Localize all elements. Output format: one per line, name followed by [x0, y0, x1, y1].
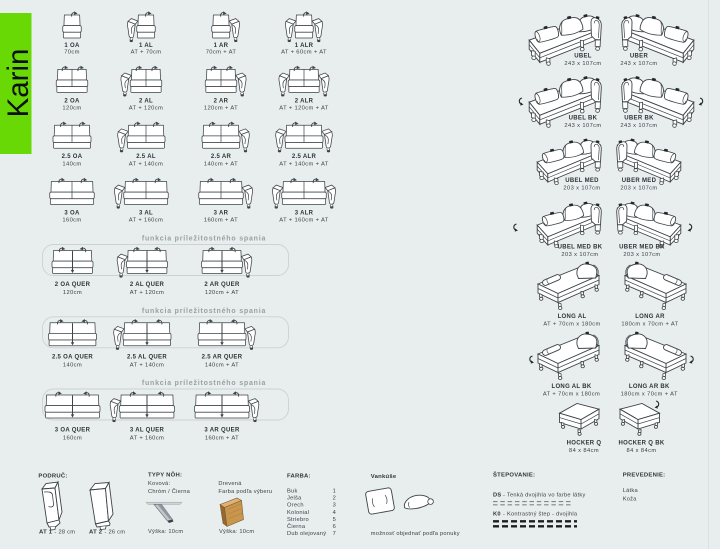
svg-text:Farba podľa výberu: Farba podľa výberu	[218, 489, 272, 495]
svg-text:AT + 70cm: AT + 70cm	[131, 50, 162, 56]
svg-text:AT + 160cm: AT + 160cm	[129, 218, 163, 224]
svg-text:7: 7	[333, 531, 336, 537]
svg-text:Striebro: Striebro	[287, 517, 309, 523]
svg-text:Výška: 10cm: Výška: 10cm	[148, 529, 183, 535]
svg-text:2.5 OA QUER: 2.5 OA QUER	[52, 355, 93, 361]
svg-text:2.5 OA: 2.5 OA	[62, 154, 83, 160]
svg-text:2 ALR: 2 ALR	[295, 98, 314, 104]
svg-text:203 x 107cm: 203 x 107cm	[563, 185, 600, 191]
svg-text:AT 1: AT 1	[39, 530, 53, 536]
svg-text:2.5 AL: 2.5 AL	[136, 154, 156, 160]
svg-text:UBER BK: UBER BK	[624, 115, 654, 121]
svg-text:AT + 160cm + AT: AT + 160cm + AT	[279, 218, 329, 224]
svg-text:Buk: Buk	[287, 488, 298, 494]
svg-text:Koža: Koža	[623, 496, 638, 502]
svg-text:TYPY NÔH:: TYPY NÔH:	[148, 471, 182, 479]
svg-text:2.5 AR: 2.5 AR	[211, 154, 232, 160]
svg-text:AT + 60cm + AT: AT + 60cm + AT	[281, 50, 327, 56]
svg-text:2 AR: 2 AR	[214, 98, 229, 104]
svg-text:120cm: 120cm	[63, 290, 82, 296]
svg-text:Látka: Látka	[623, 488, 639, 494]
svg-text:Drevená: Drevená	[218, 481, 242, 487]
svg-text:120cm + AT: 120cm + AT	[204, 105, 238, 111]
svg-text:3 AR: 3 AR	[214, 211, 229, 217]
svg-text:203 x 107cm: 203 x 107cm	[620, 185, 657, 191]
svg-text:AT + 140cm + AT: AT + 140cm + AT	[279, 161, 329, 167]
svg-text:140cm + AT: 140cm + AT	[204, 161, 238, 167]
svg-text:140cm: 140cm	[63, 363, 82, 369]
svg-text:5: 5	[333, 517, 336, 523]
svg-text:1 AR: 1 AR	[214, 43, 229, 49]
svg-text:UBEL MED BK: UBEL MED BK	[558, 244, 603, 250]
svg-text:funkcia príležitostného spania: funkcia príležitostného spania	[142, 380, 266, 387]
svg-text:180cm x 70cm + AT: 180cm x 70cm + AT	[621, 322, 678, 328]
svg-text:funkcia príležitostného spania: funkcia príležitostného spania	[142, 236, 266, 243]
svg-text:AT + 160cm: AT + 160cm	[130, 435, 164, 441]
svg-text:6: 6	[333, 524, 336, 530]
svg-text:DS: DS	[493, 493, 501, 499]
svg-text:160cm + AT: 160cm + AT	[205, 435, 239, 441]
svg-text:3: 3	[333, 503, 336, 509]
svg-text:AT + 120cm + AT: AT + 120cm + AT	[279, 105, 329, 111]
svg-text:- 28 cm: - 28 cm	[55, 530, 76, 536]
svg-text:84 x 84cm: 84 x 84cm	[626, 448, 656, 454]
svg-text:Výška: 10cm: Výška: 10cm	[219, 529, 254, 535]
svg-text:LONG AR: LONG AR	[635, 314, 665, 320]
svg-text:1 OA: 1 OA	[64, 43, 80, 49]
svg-text:160cm: 160cm	[62, 218, 81, 224]
svg-text:2 AL: 2 AL	[139, 98, 153, 104]
svg-text:2: 2	[333, 495, 336, 501]
svg-text:AT 2: AT 2	[89, 530, 103, 536]
svg-text:FARBA:: FARBA:	[287, 474, 311, 480]
svg-text:K0: K0	[493, 512, 501, 518]
svg-text:funkcia príležitostného spania: funkcia príležitostného spania	[142, 308, 266, 315]
svg-text:70cm: 70cm	[64, 50, 80, 56]
svg-text:Vankúše: Vankúše	[371, 474, 397, 480]
svg-text:AT + 120cm: AT + 120cm	[129, 105, 163, 111]
svg-text:2 AR QUER: 2 AR QUER	[204, 282, 240, 288]
svg-text:PODRUČ:: PODRUČ:	[38, 472, 67, 479]
svg-text:1: 1	[333, 488, 336, 494]
svg-text:2 OA QUER: 2 OA QUER	[55, 282, 91, 288]
svg-text:Čierna: Čierna	[287, 523, 306, 530]
svg-text:243 x 107cm: 243 x 107cm	[620, 61, 657, 67]
svg-text:3 OA QUER: 3 OA QUER	[55, 427, 91, 433]
svg-text:120cm + AT: 120cm + AT	[205, 290, 239, 296]
svg-text:203 x 107cm: 203 x 107cm	[623, 252, 660, 258]
svg-text:UBEL BK: UBEL BK	[569, 115, 598, 121]
svg-text:Karin: Karin	[2, 49, 35, 118]
svg-text:Dub olejovaný: Dub olejovaný	[287, 531, 326, 537]
svg-text:Kolonial: Kolonial	[287, 510, 309, 516]
svg-text:UBEL MED: UBEL MED	[565, 178, 599, 184]
svg-text:243 x 107cm: 243 x 107cm	[564, 61, 601, 67]
svg-text:AT + 140cm: AT + 140cm	[129, 161, 163, 167]
svg-text:160cm: 160cm	[63, 435, 82, 441]
svg-text:2.5 AR QUER: 2.5 AR QUER	[202, 355, 243, 361]
svg-text:HOCKER Q BK: HOCKER Q BK	[619, 440, 665, 446]
svg-text:Kovová:: Kovová:	[148, 481, 170, 487]
svg-text:3 ALR: 3 ALR	[295, 211, 314, 217]
svg-text:1 ALR: 1 ALR	[295, 43, 314, 49]
svg-text:120cm: 120cm	[62, 105, 81, 111]
svg-text:2 OA: 2 OA	[64, 98, 80, 104]
svg-text:243 x 107cm: 243 x 107cm	[564, 123, 601, 129]
svg-text:AT + 140cm: AT + 140cm	[130, 363, 164, 369]
svg-text:2.5 AL QUER: 2.5 AL QUER	[127, 355, 167, 361]
svg-text:3 AL: 3 AL	[139, 211, 153, 217]
svg-text:AT + 70cm x 180cm: AT + 70cm x 180cm	[543, 392, 600, 398]
svg-text:140cm + AT: 140cm + AT	[205, 363, 239, 369]
svg-text:UBER: UBER	[630, 53, 649, 59]
svg-text:243 x 107cm: 243 x 107cm	[620, 123, 657, 129]
svg-text:UBER MED BK: UBER MED BK	[619, 244, 665, 250]
svg-text:LONG AR BK: LONG AR BK	[629, 384, 670, 390]
svg-text:ŠTEPOVANIE:: ŠTEPOVANIE:	[493, 471, 535, 479]
svg-text:UBEL: UBEL	[574, 53, 592, 59]
svg-text:70cm + AT: 70cm + AT	[206, 50, 237, 56]
svg-text:UBER MED: UBER MED	[622, 178, 657, 184]
svg-text:- Kontrastný štep - dvojihla: - Kontrastný štep - dvojihla	[503, 512, 578, 518]
svg-text:LONG AL BK: LONG AL BK	[552, 384, 592, 390]
svg-text:2 AL QUER: 2 AL QUER	[130, 282, 165, 288]
svg-text:AT + 120cm: AT + 120cm	[130, 290, 164, 296]
svg-text:HOCKER Q: HOCKER Q	[567, 440, 602, 446]
svg-text:LONG AL: LONG AL	[558, 314, 587, 320]
svg-text:Jelša: Jelša	[287, 495, 302, 501]
svg-text:2.5 ALR: 2.5 ALR	[292, 154, 317, 160]
svg-text:možnosť objednať podľa ponuky: možnosť objednať podľa ponuky	[371, 531, 460, 537]
svg-text:203 x 107cm: 203 x 107cm	[561, 252, 598, 258]
svg-text:PREVEDENIE:: PREVEDENIE:	[623, 473, 666, 479]
svg-text:- Tenká dvojihla vo farbe látk: - Tenká dvojihla vo farbe látky	[503, 493, 586, 499]
svg-text:3 AL QUER: 3 AL QUER	[130, 427, 165, 433]
svg-text:1 AL: 1 AL	[139, 43, 153, 49]
svg-text:3 OA: 3 OA	[64, 211, 80, 217]
svg-text:Chróm / Čierna: Chróm / Čierna	[148, 488, 191, 495]
svg-text:84 x 84cm: 84 x 84cm	[569, 448, 599, 454]
svg-text:Orech: Orech	[287, 503, 304, 509]
svg-text:4: 4	[333, 510, 336, 516]
svg-text:- 26 cm: - 26 cm	[105, 530, 126, 536]
svg-text:180cm x 70cm + AT: 180cm x 70cm + AT	[621, 392, 678, 398]
svg-text:3 AR QUER: 3 AR QUER	[204, 427, 240, 433]
svg-text:160cm + AT: 160cm + AT	[204, 218, 238, 224]
svg-text:140cm: 140cm	[62, 161, 81, 167]
svg-text:AT + 70cm x 180cm: AT + 70cm x 180cm	[543, 322, 600, 328]
